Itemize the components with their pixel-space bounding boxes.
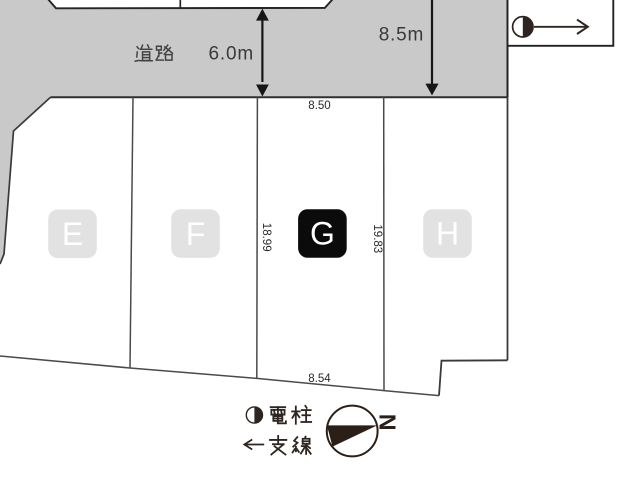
svg-text:E: E (62, 216, 83, 252)
svg-text:G: G (310, 216, 335, 252)
svg-text:8.54: 8.54 (308, 373, 331, 385)
svg-text:8.5m: 8.5m (379, 24, 424, 45)
svg-text:8.50: 8.50 (308, 100, 330, 112)
svg-text:18.99: 18.99 (260, 223, 272, 252)
svg-text:19.83: 19.83 (371, 224, 383, 253)
svg-text:N: N (374, 414, 400, 431)
svg-text:F: F (186, 216, 206, 252)
svg-text:6.0m: 6.0m (209, 43, 254, 64)
svg-text:H: H (436, 216, 459, 252)
